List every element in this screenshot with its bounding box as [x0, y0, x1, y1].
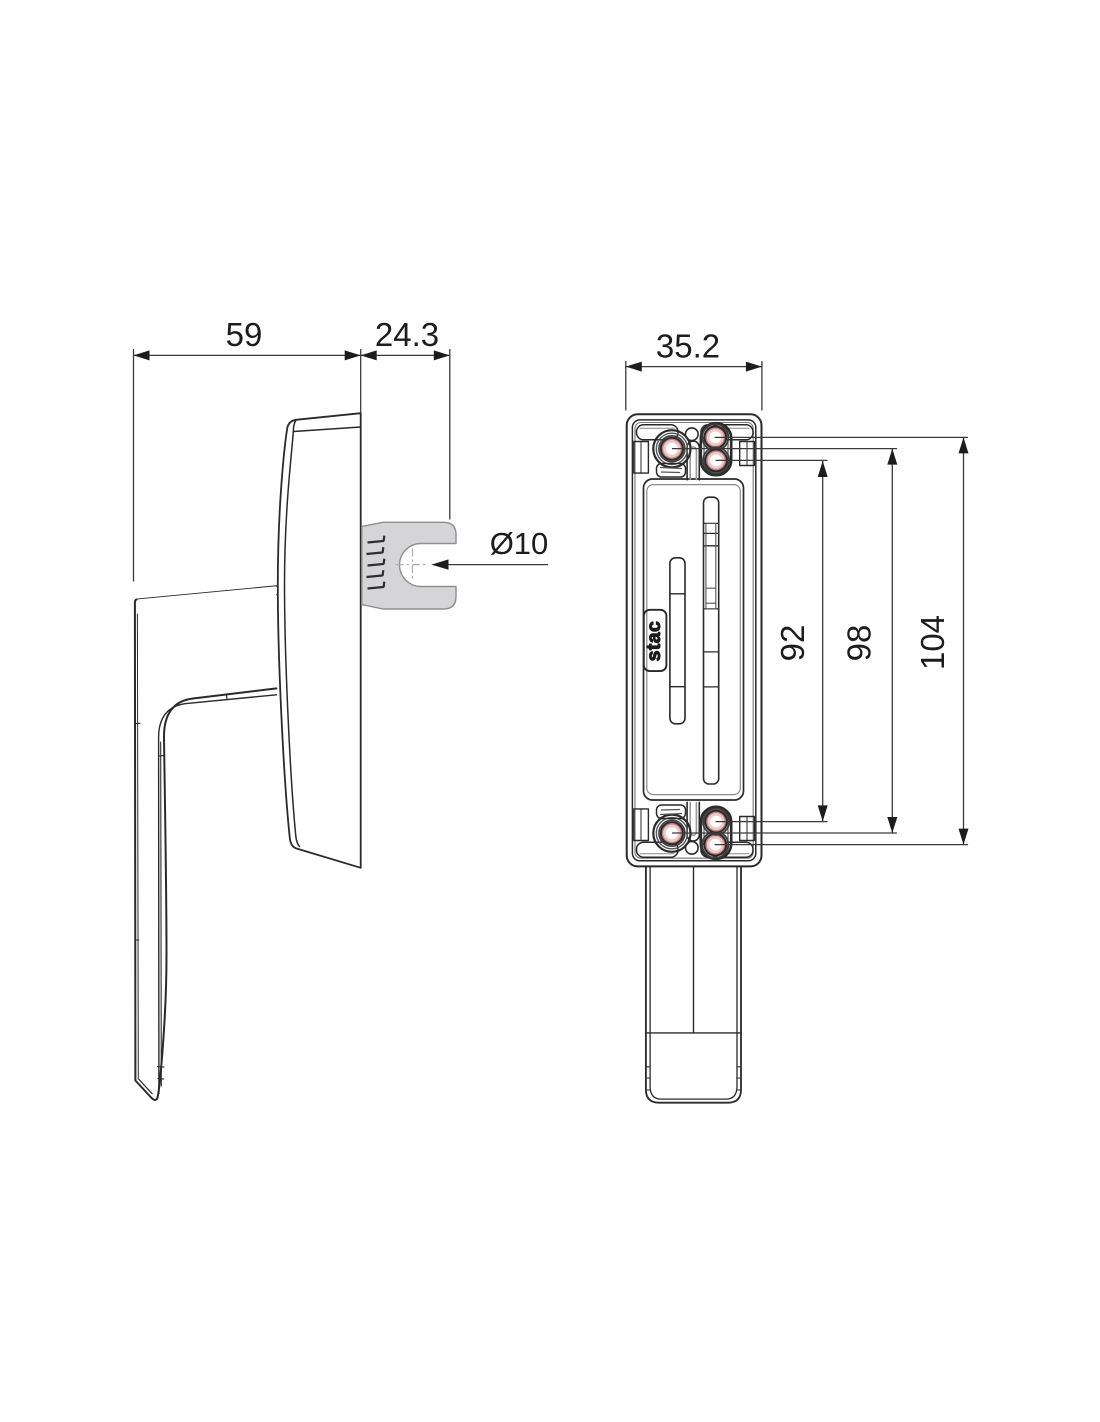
svg-text:98: 98: [841, 625, 878, 662]
svg-text:24.3: 24.3: [375, 316, 439, 353]
svg-text:104: 104: [914, 615, 951, 670]
svg-text:stac: stac: [643, 621, 665, 662]
svg-text:92: 92: [774, 625, 811, 662]
svg-text:59: 59: [226, 316, 263, 353]
svg-text:Ø10: Ø10: [490, 526, 549, 561]
svg-text:35.2: 35.2: [656, 328, 720, 365]
